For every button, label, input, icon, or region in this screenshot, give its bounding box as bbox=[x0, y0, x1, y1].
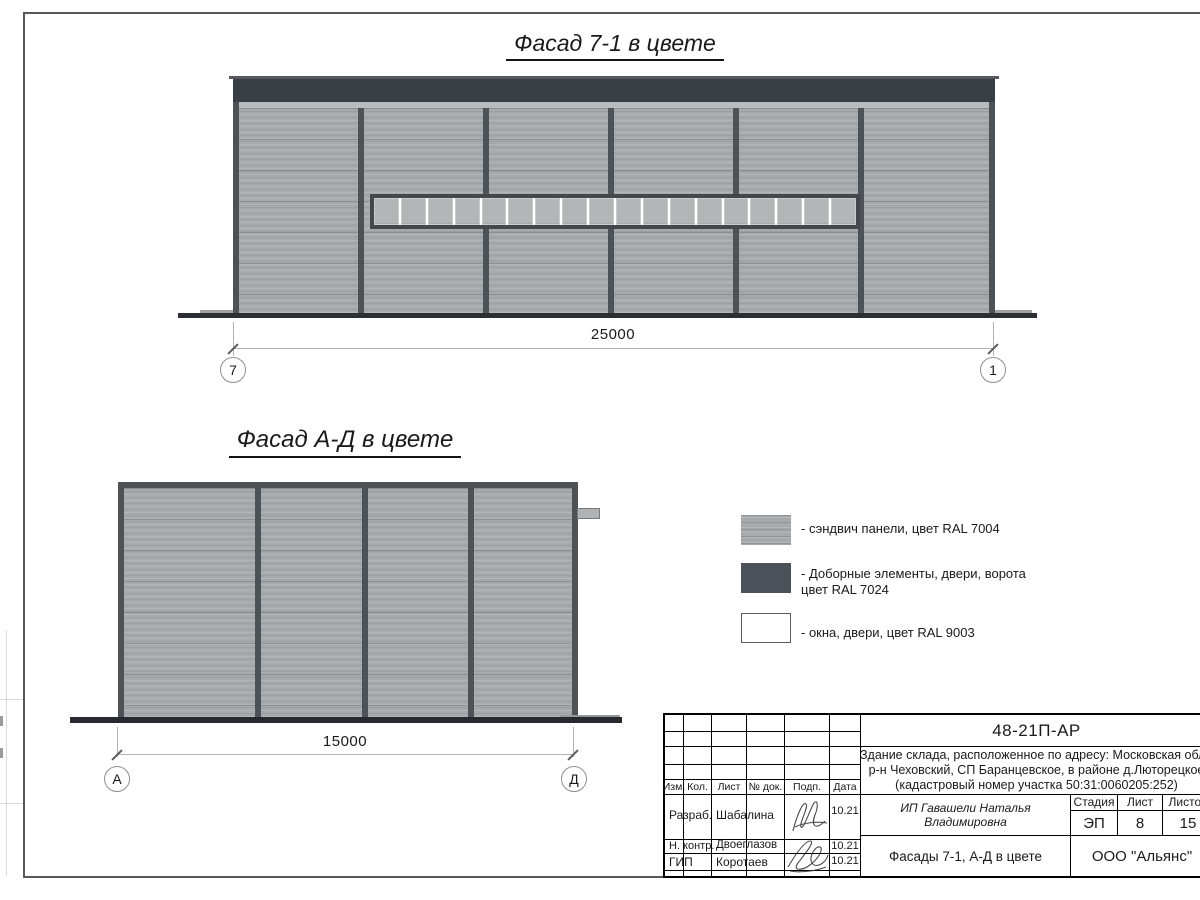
margin-stamp-divider bbox=[0, 803, 23, 804]
corner-trim-right bbox=[989, 102, 995, 313]
window-pane bbox=[562, 198, 587, 225]
dimension-value: 25000 bbox=[563, 326, 663, 343]
corner-trim-left bbox=[233, 102, 239, 313]
window-pane bbox=[616, 198, 641, 225]
tb-sheets-label: Листов bbox=[1163, 794, 1200, 810]
window-pane bbox=[589, 198, 614, 225]
legend-label-panels: - сэндвич панели, цвет RAL 7004 bbox=[801, 521, 1000, 536]
mullion bbox=[362, 488, 368, 722]
margin-stamp-text bbox=[0, 748, 3, 758]
legend-swatch-windows bbox=[741, 613, 791, 643]
tb-address: Здание склада, расположенное по адресу: … bbox=[860, 748, 1200, 794]
tb-col-data: Дата bbox=[830, 779, 860, 794]
margin-stamp-line bbox=[6, 630, 7, 876]
window-pane bbox=[428, 198, 453, 225]
tb-address-line3: (кадастровый номер участка 50:31:0060205… bbox=[860, 778, 1200, 793]
sheet-frame-left bbox=[23, 12, 25, 878]
legend-swatch-trim bbox=[741, 563, 791, 593]
legend-label-windows: - окна, двери, цвет RAL 9003 bbox=[801, 625, 975, 640]
tb-hline bbox=[665, 746, 1200, 747]
dimension-line bbox=[233, 348, 993, 349]
margin-stamp-divider bbox=[0, 699, 23, 700]
window-pane bbox=[724, 198, 749, 225]
sandwich-panel-wall bbox=[124, 488, 572, 722]
tb-col-doc: № док. bbox=[747, 779, 784, 794]
title-block: 48-21П-АР Здание склада, расположенное п… bbox=[663, 713, 1200, 878]
mullion bbox=[358, 108, 364, 313]
window-strip-panes bbox=[370, 194, 860, 229]
window-pane bbox=[777, 198, 802, 225]
tb-col-list: Лист bbox=[712, 779, 746, 794]
corner-trim-left bbox=[118, 482, 124, 722]
tb-drawing-title: Фасады 7-1, А-Д в цвете bbox=[861, 836, 1070, 876]
window-pane bbox=[374, 198, 399, 225]
ground-line bbox=[70, 717, 622, 723]
legend-label-trim-line1: - Доборные элементы, двери, ворота bbox=[801, 566, 1026, 581]
tb-name-dvoeglazov: Двоеглазов bbox=[716, 839, 777, 851]
tb-date: 10.21 bbox=[830, 854, 860, 868]
tb-sheets-value: 15 bbox=[1163, 811, 1200, 835]
parapet-band bbox=[233, 79, 995, 102]
sheet-frame-top bbox=[23, 12, 1200, 14]
margin-stamp-text bbox=[0, 716, 3, 726]
window-pane bbox=[670, 198, 695, 225]
tb-company: ООО "Альянс" bbox=[1071, 836, 1200, 876]
tb-role-gip: ГИП bbox=[669, 855, 693, 869]
tb-address-line2: р-н Чеховский, СП Баранцевское, в районе… bbox=[860, 763, 1200, 778]
legend-label-trim-line2: цвет RAL 7024 bbox=[801, 582, 889, 597]
window-pane bbox=[482, 198, 507, 225]
tb-sheet-label: Лист bbox=[1118, 794, 1162, 810]
facade-7-1-drawing bbox=[229, 76, 999, 318]
ground-line bbox=[178, 313, 1037, 318]
tb-date: 10.21 bbox=[830, 803, 860, 818]
tb-stage-label: Стадия bbox=[1071, 794, 1117, 810]
legend: - сэндвич панели, цвет RAL 7004 - Доборн… bbox=[740, 512, 1120, 652]
frame-top bbox=[118, 482, 578, 488]
tb-date: 10.21 bbox=[830, 839, 860, 852]
tb-col-podp: Подп. bbox=[785, 779, 829, 794]
dimension-value: 15000 bbox=[295, 733, 395, 750]
tb-doc-number: 48-21П-АР bbox=[860, 715, 1200, 746]
window-pane bbox=[535, 198, 560, 225]
facade-7-1-title: Фасад 7-1 в цвете bbox=[380, 30, 850, 61]
extension-line bbox=[993, 322, 994, 356]
tb-hline bbox=[665, 764, 860, 765]
tb-address-line1: Здание склада, расположенное по адресу: … bbox=[860, 748, 1200, 763]
window-pane bbox=[401, 198, 426, 225]
dimension-line bbox=[117, 754, 573, 755]
tb-hline bbox=[665, 870, 860, 871]
axis-bubble-a: А bbox=[104, 766, 130, 792]
tb-stage-value: ЭП bbox=[1071, 811, 1117, 835]
facade-ad-drawing bbox=[118, 482, 578, 723]
window-pane bbox=[804, 198, 829, 225]
window-pane bbox=[643, 198, 668, 225]
window-pane bbox=[455, 198, 480, 225]
signature-korotaev-icon bbox=[784, 835, 830, 875]
signature-shabalina-icon bbox=[787, 797, 829, 839]
tb-sheet-value: 8 bbox=[1118, 811, 1162, 835]
tb-col-kol: Кол. bbox=[684, 779, 711, 794]
window-pane bbox=[508, 198, 533, 225]
axis-bubble-d: Д bbox=[561, 766, 587, 792]
extension-line bbox=[233, 322, 234, 356]
window-pane bbox=[831, 198, 856, 225]
tb-role-nkontr: Н. контр. bbox=[669, 840, 714, 852]
tb-col-izm: Изм. bbox=[665, 779, 683, 794]
facade-ad-title: Фасад А-Д в цвете bbox=[160, 426, 530, 458]
tb-role-razrab: Разраб. bbox=[669, 808, 712, 822]
tb-client: ИП Гавашели Наталья Владимировна bbox=[861, 794, 1070, 835]
tb-hline bbox=[665, 731, 860, 732]
wall-outlet bbox=[577, 508, 600, 519]
tb-vline bbox=[746, 715, 747, 876]
mullion bbox=[255, 488, 261, 722]
window-pane bbox=[750, 198, 775, 225]
tb-name-shabalina: Шабалина bbox=[716, 808, 774, 822]
legend-swatch-panels bbox=[741, 515, 791, 545]
axis-bubble-7: 7 bbox=[220, 357, 246, 383]
tb-name-korotaev: Коротаев bbox=[716, 855, 768, 869]
axis-bubble-1: 1 bbox=[980, 357, 1006, 383]
drawing-sheet: Фасад 7-1 в цвете 25000 7 1 Фасад А- bbox=[0, 0, 1200, 900]
mullion bbox=[468, 488, 474, 722]
window-pane bbox=[697, 198, 722, 225]
